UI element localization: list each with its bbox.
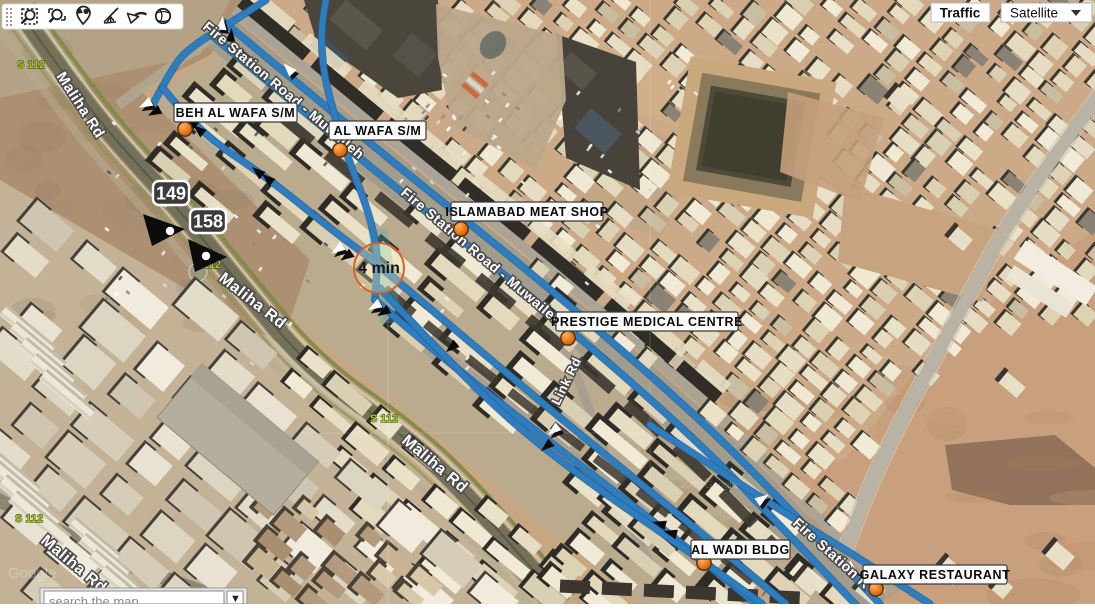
svg-text:BEH AL WAFA S/M: BEH AL WAFA S/M: [176, 106, 296, 120]
svg-text:S 112: S 112: [17, 59, 45, 71]
svg-text:▼: ▼: [230, 593, 241, 604]
svg-text:AL WADI BLDG: AL WADI BLDG: [691, 543, 790, 557]
svg-text:S 112: S 112: [370, 413, 398, 425]
svg-text:158: 158: [193, 212, 223, 232]
svg-text:S 112: S 112: [15, 513, 43, 525]
svg-text:ISLAMABAD MEAT SHOP: ISLAMABAD MEAT SHOP: [445, 205, 608, 219]
svg-text:AL WAFA S/M: AL WAFA S/M: [334, 124, 422, 138]
svg-text:GALAXY RESTAURANT: GALAXY RESTAURANT: [860, 568, 1011, 582]
svg-text:Satellite: Satellite: [1010, 6, 1058, 21]
svg-text:149: 149: [156, 184, 186, 204]
svg-text:Traffic: Traffic: [940, 6, 981, 21]
svg-text:search the map: search the map: [49, 594, 139, 604]
svg-text:4 min: 4 min: [358, 260, 400, 277]
svg-text:PRESTIGE MEDICAL CENTRE: PRESTIGE MEDICAL CENTRE: [551, 315, 743, 329]
svg-text:2009 Google: 2009 Google: [680, 480, 738, 491]
svg-text:Google: Google: [8, 565, 56, 582]
